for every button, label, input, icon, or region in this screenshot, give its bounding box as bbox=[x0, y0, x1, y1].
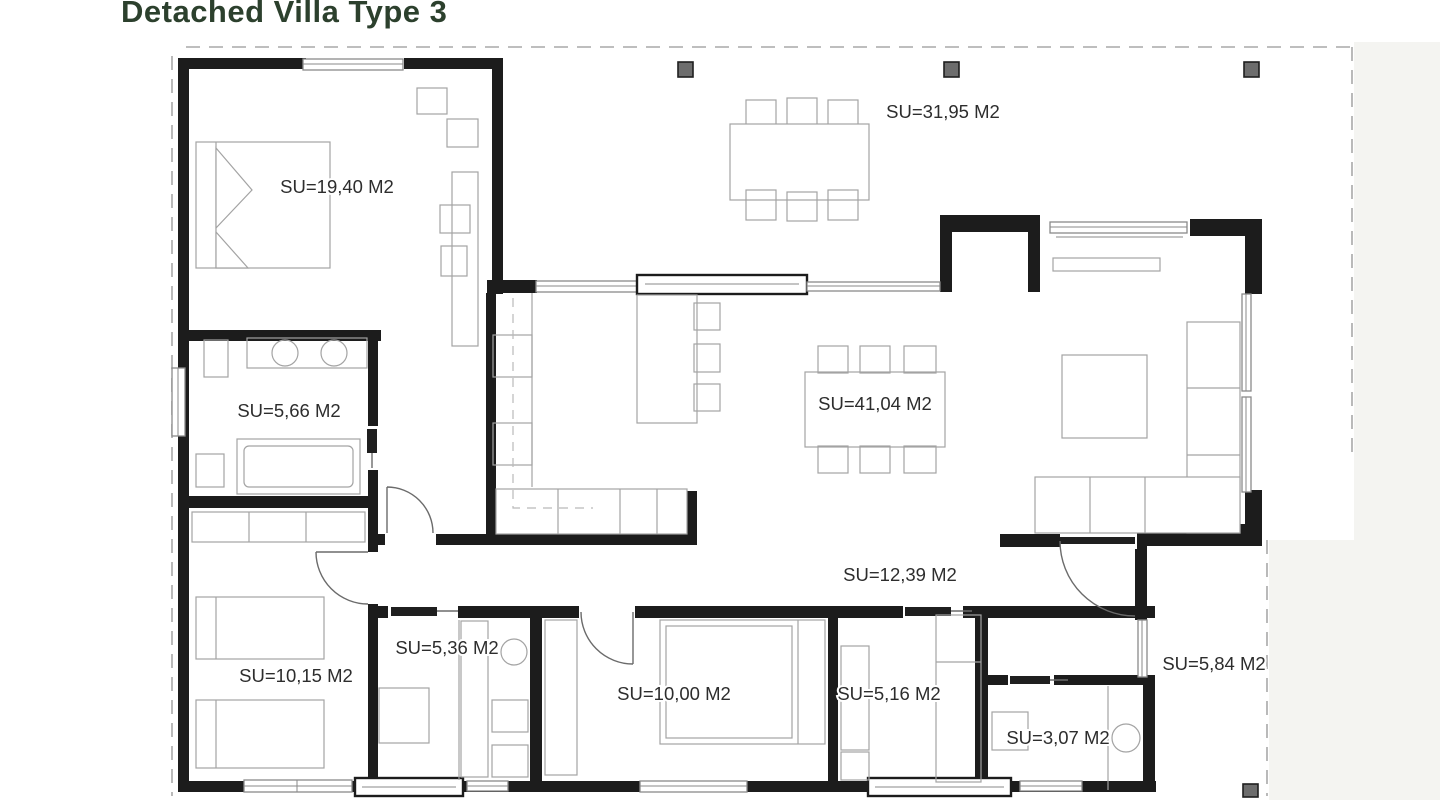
window-icon bbox=[467, 781, 508, 791]
twin-bed-icon bbox=[196, 597, 324, 659]
window-icon bbox=[1020, 781, 1082, 791]
room-label-bathroom-1: SU=5,66 M2 bbox=[237, 400, 340, 421]
kitchen-island-icon bbox=[637, 295, 720, 423]
sliding-door-icon bbox=[637, 275, 807, 294]
door-arc-bedroom-2 bbox=[316, 552, 368, 604]
room-label-hallway: SU=12,39 M2 bbox=[843, 564, 957, 585]
window-icon bbox=[640, 781, 747, 792]
washer-icon bbox=[379, 688, 429, 743]
toilet-icon bbox=[492, 700, 528, 777]
sofa-icon bbox=[1035, 322, 1240, 533]
twin-bed-icon bbox=[196, 700, 324, 768]
coffee-table-icon bbox=[1062, 355, 1147, 438]
window-icon bbox=[244, 780, 352, 792]
bathtub-icon bbox=[841, 646, 869, 780]
sliding-door-icon bbox=[355, 778, 463, 796]
window-icon bbox=[172, 368, 185, 436]
wardrobe-icon bbox=[545, 620, 577, 775]
outside-shading bbox=[1269, 42, 1440, 800]
room-label-bedroom-3: SU=10,00 M2 bbox=[617, 683, 731, 704]
room-label-terrace: SU=31,95 M2 bbox=[886, 101, 1000, 122]
double-vanity-icon bbox=[204, 338, 367, 377]
window-icon bbox=[1242, 397, 1251, 492]
wardrobe-icon bbox=[440, 172, 478, 346]
room-label-bathroom-3: SU=5,16 M2 bbox=[837, 683, 940, 704]
window-icon bbox=[303, 59, 403, 70]
window-icon bbox=[807, 282, 940, 291]
room-label-living-dining: SU=41,04 M2 bbox=[818, 393, 932, 414]
closet-strip-icon bbox=[192, 512, 365, 542]
window-icon bbox=[1138, 620, 1147, 677]
window-icon bbox=[536, 281, 637, 292]
armchair-icon bbox=[417, 88, 478, 147]
bathtub-icon bbox=[196, 439, 360, 494]
room-label-bathroom-2: SU=5,36 M2 bbox=[395, 637, 498, 658]
window-icon bbox=[1242, 294, 1251, 391]
sliding-door-icon bbox=[868, 778, 1011, 796]
double-bed-icon bbox=[660, 620, 825, 744]
kitchen-counter-icon bbox=[493, 293, 687, 534]
room-label-toilet: SU=3,07 M2 bbox=[1006, 727, 1109, 748]
shower-icon bbox=[936, 615, 981, 782]
floor-plan-drawing: SU=19,40 M2 SU=31,95 M2 SU=5,66 M2 SU=41… bbox=[0, 0, 1440, 800]
sink-icon bbox=[501, 639, 527, 665]
door-arc-hall bbox=[387, 487, 433, 533]
sink-icon bbox=[1108, 686, 1140, 790]
sliding-door-icon bbox=[1050, 222, 1187, 237]
room-label-bedroom-2: SU=10,15 M2 bbox=[239, 665, 353, 686]
floor-plan-page: Detached Villa Type 3 bbox=[0, 0, 1440, 800]
tv-console-icon bbox=[1053, 258, 1160, 271]
room-label-master-bedroom: SU=19,40 M2 bbox=[280, 176, 394, 197]
terrace-table-icon bbox=[730, 98, 869, 221]
double-bed-icon bbox=[196, 142, 330, 268]
room-label-entrance-porch: SU=5,84 M2 bbox=[1162, 653, 1265, 674]
